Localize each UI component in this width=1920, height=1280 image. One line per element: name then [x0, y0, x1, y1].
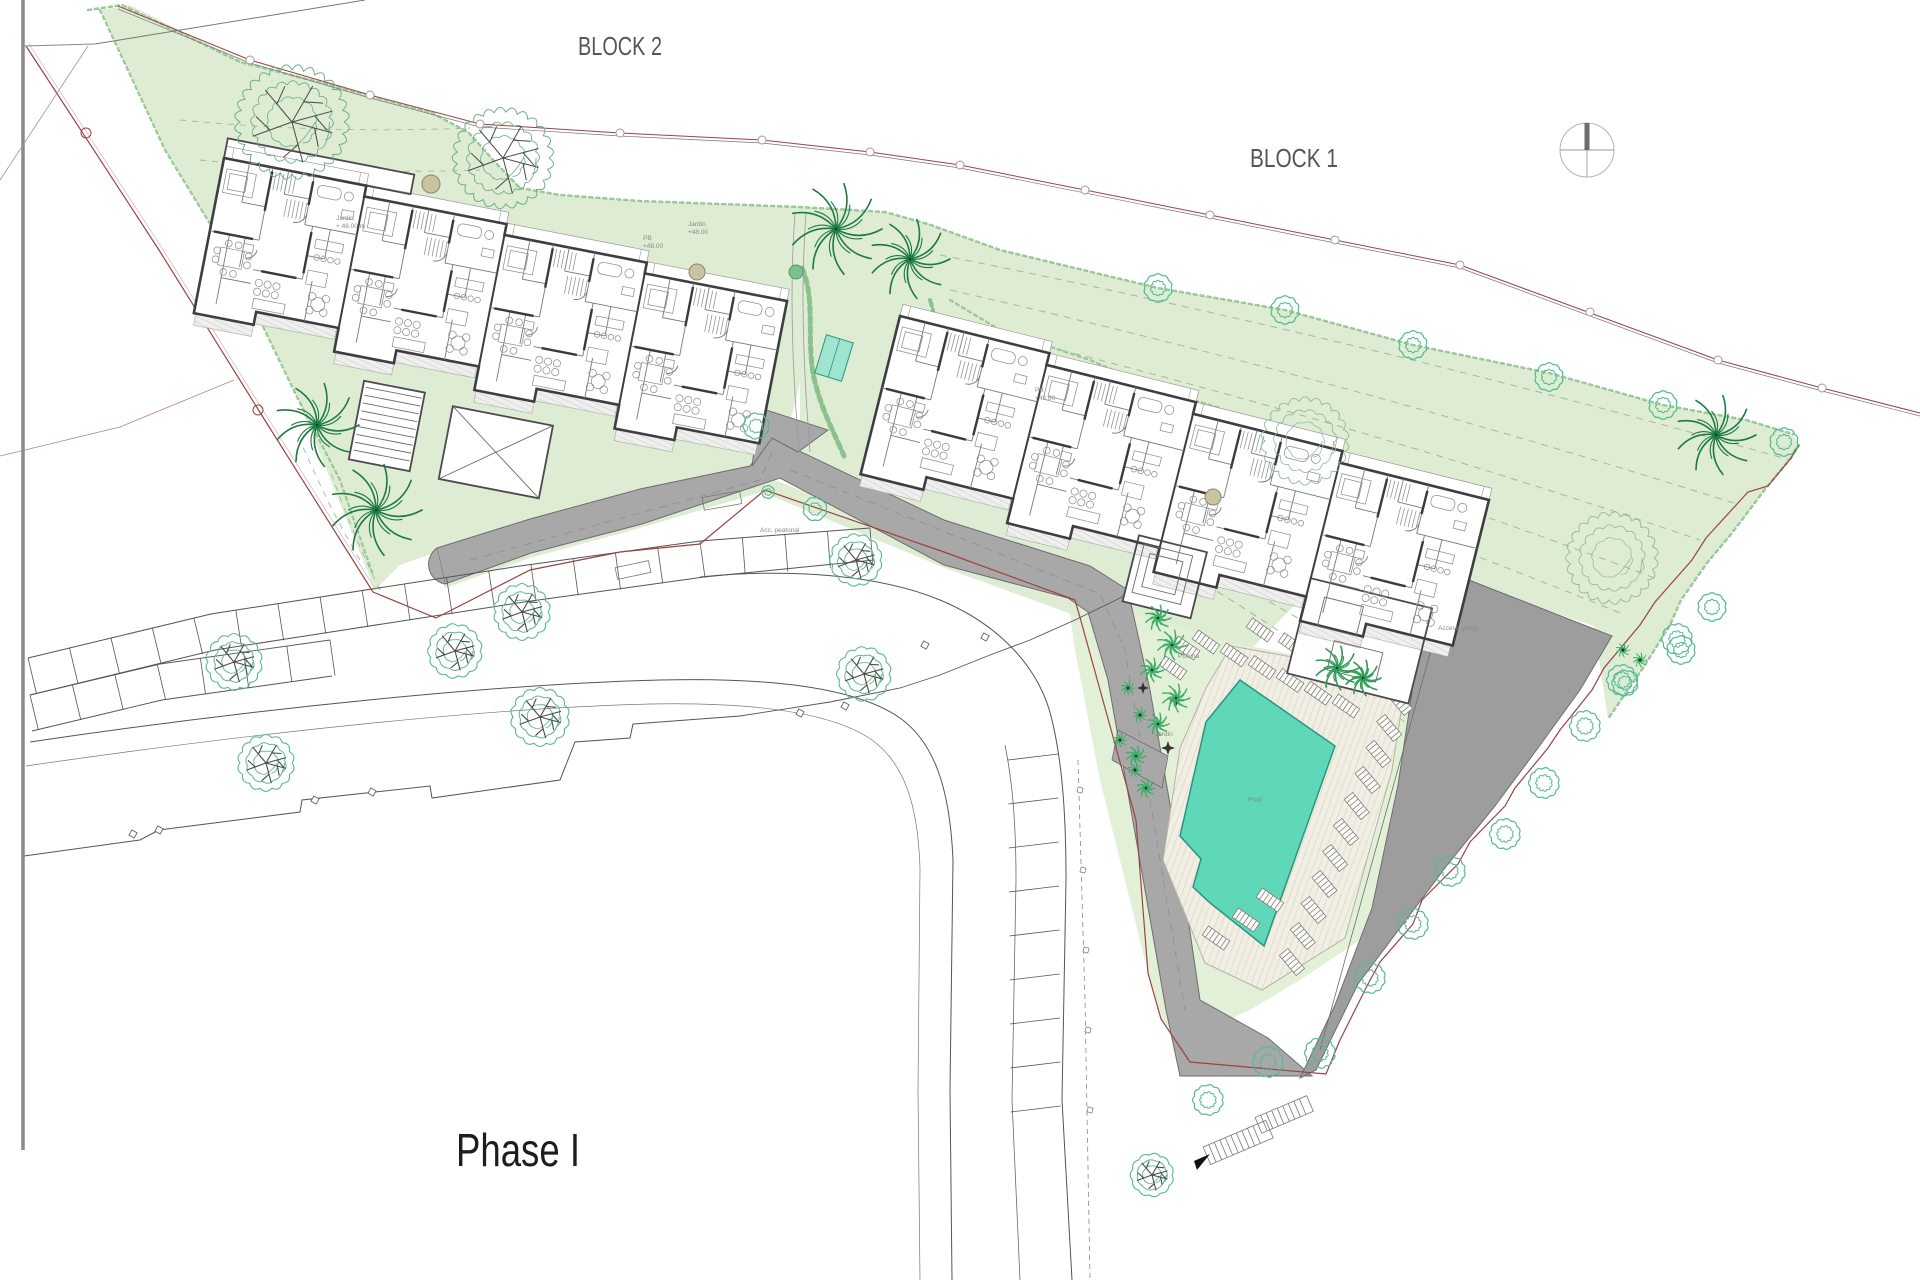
svg-text:Phase I: Phase I [456, 1124, 580, 1176]
svg-text:Jardin: Jardin [1155, 731, 1173, 738]
svg-text:BLOCK 2: BLOCK 2 [578, 31, 662, 61]
svg-text:PB: PB [643, 235, 652, 242]
svg-text:Piscina: Piscina [1178, 653, 1199, 660]
svg-text:Acceso garaje: Acceso garaje [1438, 625, 1480, 632]
svg-text:+ 48.00 m: + 48.00 m [336, 223, 365, 230]
svg-text:Jardin: Jardin [688, 221, 706, 228]
svg-text:Acc. peatonal: Acc. peatonal [760, 527, 800, 534]
svg-text:+46.80: +46.80 [1035, 395, 1055, 402]
svg-text:+48.00: +48.00 [688, 229, 708, 236]
svg-text:Pool: Pool [1248, 797, 1262, 804]
svg-text:BLOCK 1: BLOCK 1 [1250, 143, 1338, 173]
svg-text:+48.00: +48.00 [643, 243, 663, 250]
svg-text:Jardin: Jardin [336, 215, 354, 222]
svg-text:PB: PB [1035, 387, 1044, 394]
